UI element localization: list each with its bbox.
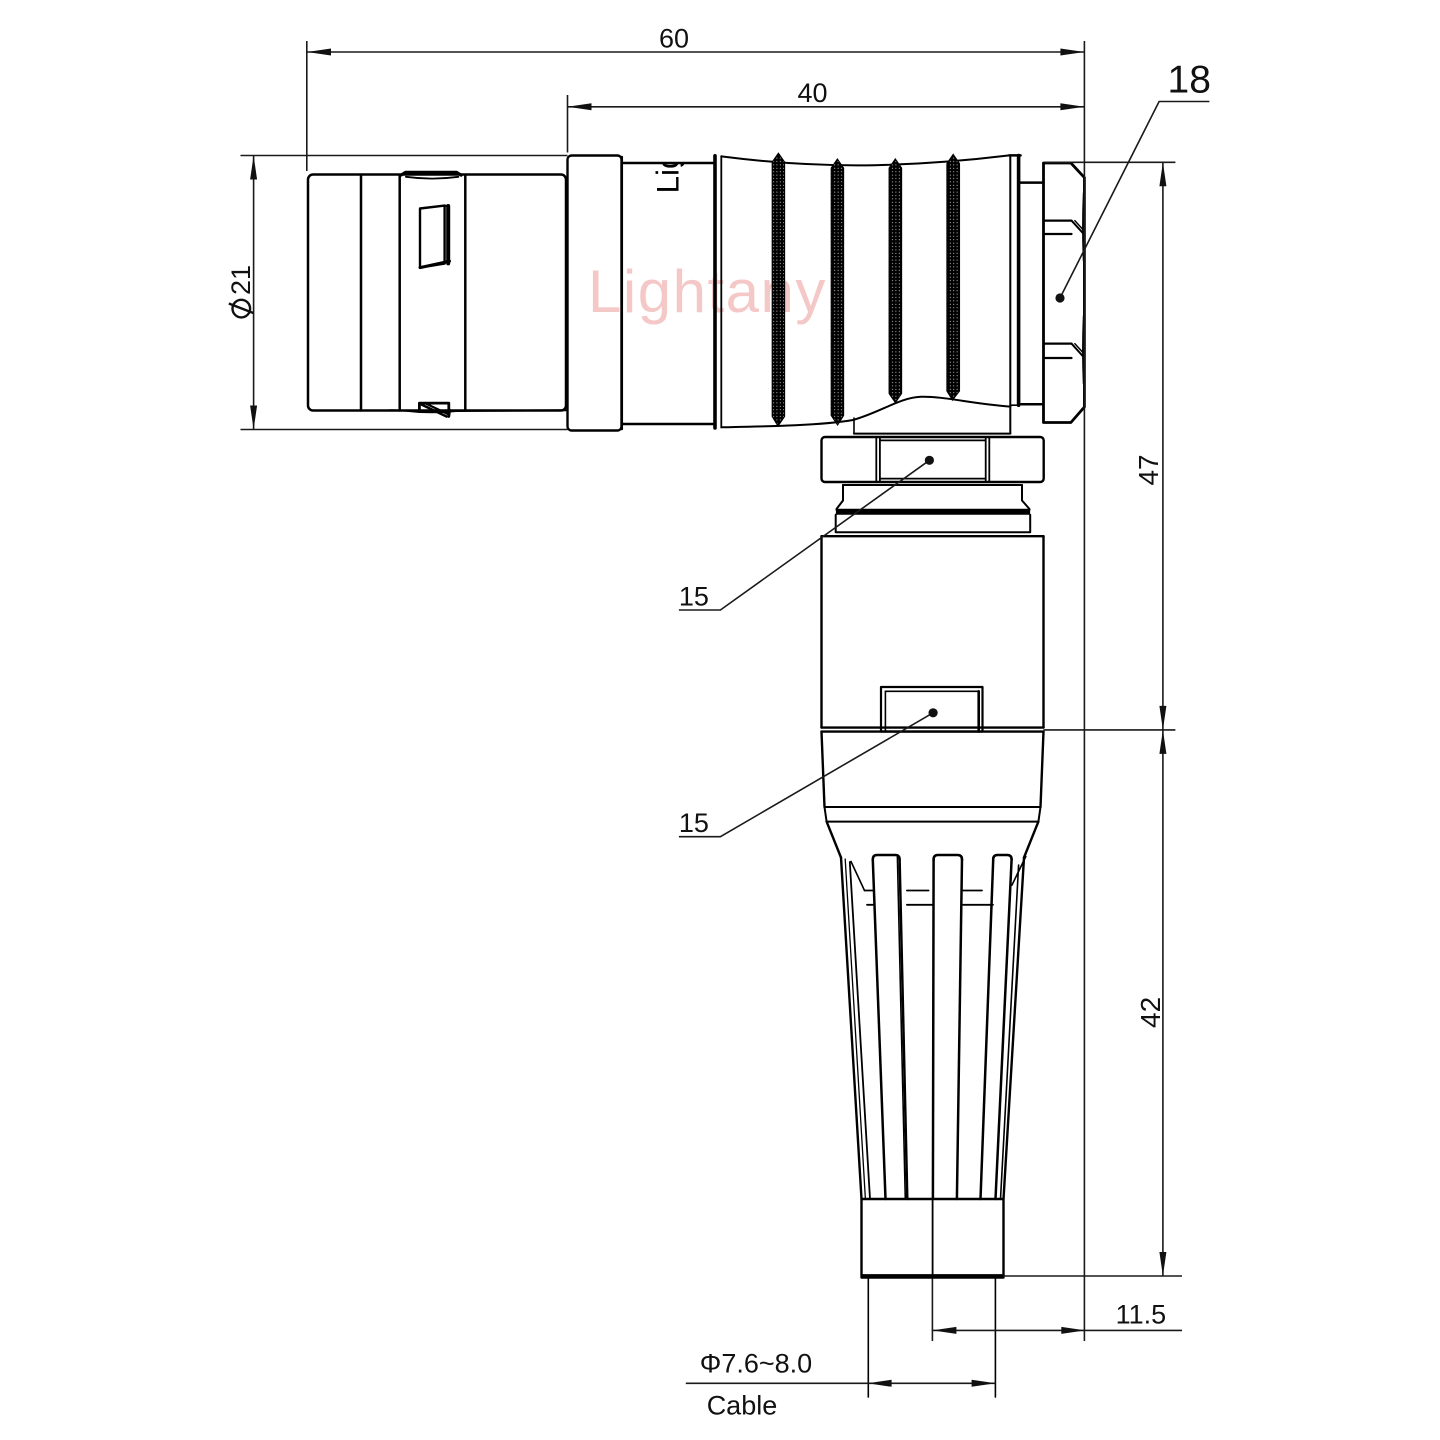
svg-text:Cable: Cable <box>707 1391 778 1421</box>
svg-text:Lightany: Lightany <box>588 258 827 325</box>
svg-text:15: 15 <box>679 582 709 612</box>
svg-text:15: 15 <box>679 808 709 838</box>
svg-text:11.5: 11.5 <box>1116 1300 1167 1330</box>
svg-text:18: 18 <box>1168 59 1211 102</box>
svg-text:40: 40 <box>798 78 828 108</box>
svg-text:21: 21 <box>226 265 256 295</box>
svg-text:47: 47 <box>1133 454 1164 485</box>
svg-text:Φ7.6~8.0: Φ7.6~8.0 <box>700 1348 812 1378</box>
svg-text:60: 60 <box>659 24 689 54</box>
svg-text:42: 42 <box>1135 997 1166 1028</box>
